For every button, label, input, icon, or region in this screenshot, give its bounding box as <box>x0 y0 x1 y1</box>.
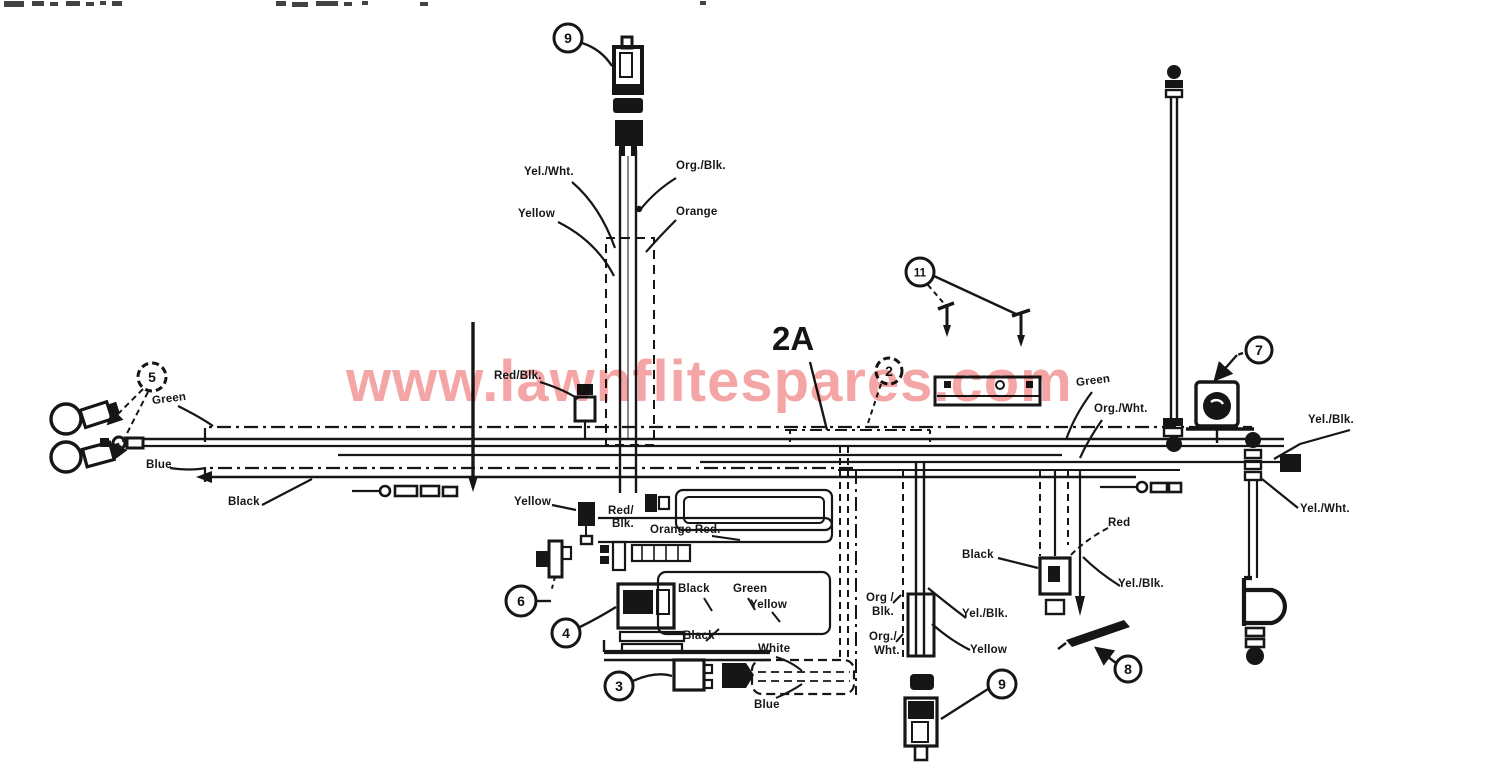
wire-label-white-lower: White <box>758 643 790 655</box>
wire-label-black-left: Black <box>228 496 260 508</box>
callout-8-number: 8 <box>1124 661 1132 677</box>
wire-label-red-blk-low-1: Red/ <box>608 505 634 517</box>
wire-label-yellow-top: Yellow <box>518 208 555 220</box>
callout-8: 8 <box>1096 648 1141 682</box>
wire-label-red-right: Red <box>1108 517 1130 529</box>
wire-label-yellow-center: Yellow <box>750 599 787 611</box>
key-switch <box>1186 382 1254 443</box>
callout-4: 4 <box>552 607 616 647</box>
callout-5-number: 5 <box>148 369 156 385</box>
wire-label-green-center: Green <box>733 583 767 595</box>
wire-label-yel-blk-right: Yel./Blk. <box>1118 578 1164 590</box>
wire-label-yellow-mid: Yellow <box>514 496 551 508</box>
callout-7: 7 <box>1215 337 1272 380</box>
callout-6: 6 <box>506 586 551 616</box>
wire-label-red-blk-low-2: Blk. <box>612 518 634 530</box>
callout-9-top: 9 <box>554 24 612 66</box>
wiring-diagram-page: 9 2 11 <box>0 0 1500 782</box>
wire-label-org-wht-bot-1: Org./ <box>869 631 897 643</box>
wire-label-blue-left: Blue <box>146 459 172 471</box>
wire-label-yel-blk-far: Yel./Blk. <box>1308 414 1354 426</box>
wire-label-yellow-bot: Yellow <box>970 644 1007 656</box>
headlight-bulbs <box>51 399 123 472</box>
wire-label-org-blk-top: Org./Blk. <box>676 160 726 172</box>
top-label-leaders <box>558 178 676 276</box>
wire-label-black-lower: Black <box>683 630 715 642</box>
callout-9-bottom: 9 <box>941 670 1016 719</box>
wire-label-org-blk-bot-1: Org / <box>866 592 894 604</box>
wire-label-org-wht-right: Org./Wht. <box>1094 403 1148 415</box>
battery-wires <box>998 470 1120 616</box>
callout-9-bottom-number: 9 <box>998 676 1006 692</box>
watermark: www.lawnflitespares.com <box>346 348 1073 415</box>
main-harness-wires <box>113 427 1301 496</box>
callout-3: 3 <box>605 672 672 700</box>
section-label-2a: 2A <box>772 320 814 358</box>
wire-label-black-center: Black <box>678 583 710 595</box>
cable-strap <box>1058 620 1130 649</box>
wire-label-red-blk-mid: Red/Blk. <box>494 370 542 382</box>
white-blue-leaders <box>776 657 802 698</box>
wire-label-yel-blk-bot: Yel./Blk. <box>962 608 1008 620</box>
callout-7-number: 7 <box>1255 342 1263 358</box>
wire-label-black-right: Black <box>962 549 994 561</box>
wire-label-yel-wht-far: Yel./Wht. <box>1300 503 1350 515</box>
callout-4-number: 4 <box>562 625 570 641</box>
callout-9-top-number: 9 <box>564 30 572 46</box>
relay-module <box>618 584 684 651</box>
wire-label-yel-wht-top: Yel./Wht. <box>524 166 574 178</box>
left-label-leaders <box>170 406 312 505</box>
yellow-connector <box>552 502 595 544</box>
engine-harness-wires <box>620 150 636 493</box>
callout-3-number: 3 <box>615 678 623 694</box>
callout-11: 11 <box>906 258 1016 314</box>
throttle-cable-wire <box>1163 65 1183 452</box>
wire-label-blue-lower: Blue <box>754 699 780 711</box>
scan-artifacts <box>4 1 706 7</box>
mounting-screws <box>938 303 1030 347</box>
callout-6-number: 6 <box>517 593 525 609</box>
toggle-switch <box>536 541 571 592</box>
wire-label-orange-red: Orange Red. <box>650 524 721 536</box>
bottom-connector <box>905 674 937 760</box>
wire-label-org-wht-bot-2: Wht. <box>874 645 900 657</box>
wire-label-orange-top: Orange <box>676 206 717 218</box>
plug-connector <box>674 660 854 694</box>
top-connector <box>612 37 644 156</box>
wire-label-org-blk-bot-2: Blk. <box>872 606 894 618</box>
callout-11-number: 11 <box>914 268 927 280</box>
ignition-wires <box>893 462 970 660</box>
